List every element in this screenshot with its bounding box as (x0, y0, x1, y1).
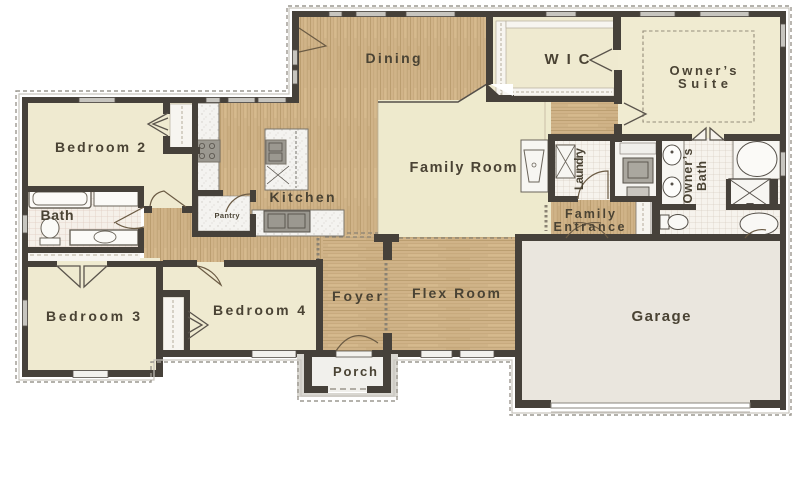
svg-text:Laundry: Laundry (572, 148, 586, 190)
svg-text:Entrance: Entrance (554, 220, 625, 234)
svg-text:Bedroom 4: Bedroom 4 (213, 302, 305, 318)
svg-text:Family: Family (565, 207, 615, 221)
svg-text:Bath: Bath (41, 207, 74, 223)
svg-text:Porch: Porch (333, 364, 377, 379)
svg-text:Owner’s: Owner’s (681, 148, 695, 203)
svg-text:Garage: Garage (632, 308, 691, 325)
svg-text:Suite: Suite (678, 76, 728, 91)
svg-text:Bedroom 3: Bedroom 3 (46, 308, 140, 324)
svg-text:Family Room: Family Room (410, 160, 517, 176)
svg-text:Bath: Bath (695, 161, 709, 191)
svg-text:Bedroom 2: Bedroom 2 (55, 139, 145, 155)
svg-text:WIC: WIC (545, 51, 590, 68)
svg-text:Flex Room: Flex Room (412, 285, 500, 301)
svg-text:Pantry: Pantry (215, 211, 241, 220)
